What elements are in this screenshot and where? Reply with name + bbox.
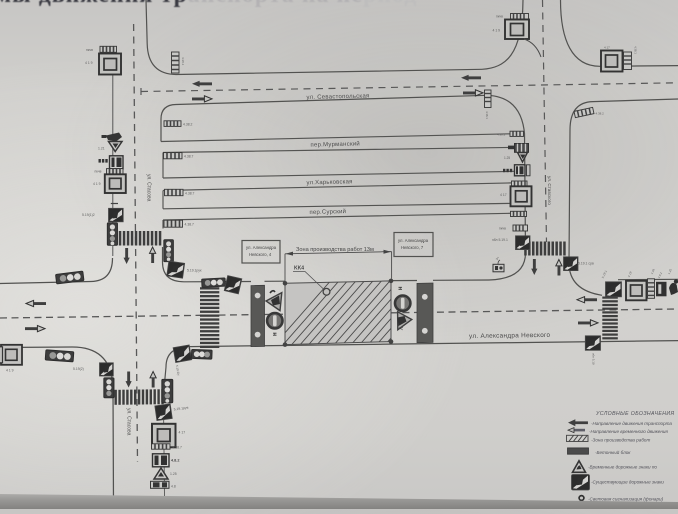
svg-text:пкчв: пкчв	[496, 15, 503, 19]
svg-text:4.8.2: 4.8.2	[171, 459, 179, 463]
svg-text:4 17: 4 17	[179, 431, 186, 435]
svg-text:ул. Севастопольская: ул. Севастопольская	[306, 93, 369, 101]
svg-text:4 17: 4 17	[500, 193, 507, 197]
svg-text:1.25: 1.25	[504, 156, 510, 160]
svg-text:5.19.1рук: 5.19.1рук	[187, 269, 202, 273]
svg-text:эбл 5.19: эбл 5.19	[592, 353, 596, 365]
svg-text:4.38.7: 4.38.7	[184, 155, 194, 159]
svg-text:-Направление временного движен: -Направление временного движения	[589, 429, 668, 434]
svg-text:ул. Стасова: ул. Стасова	[146, 174, 152, 202]
svg-text:пер.Сурский: пер.Сурский	[309, 208, 346, 216]
svg-text:-Направление движения транспор: -Направление движения транспорта	[591, 421, 672, 426]
svg-text:ул. Стасова: ул. Стасова	[126, 408, 132, 436]
svg-text:4.38.1: 4.38.1	[485, 111, 489, 119]
svg-text:-Зона производства работ: -Зона производства работ	[591, 438, 650, 443]
svg-text:ул. Ставского: ул. Ставского	[547, 176, 552, 205]
svg-text:эбл 5.19.1: эбл 5.19.1	[492, 238, 508, 242]
svg-text:УСЛОВНЫЕ ОБОЗНАЧЕНИЯ: УСЛОВНЫЕ ОБОЗНАЧЕНИЯ	[596, 411, 674, 417]
svg-text:-Световая сигнализация (фонари: -Световая сигнализация (фонари)	[588, 497, 664, 502]
svg-text:1.25: 1.25	[667, 268, 673, 275]
svg-text:KK4: KK4	[294, 266, 304, 272]
svg-text:-Временные дорожные знаки по: -Временные дорожные знаки по	[588, 465, 657, 470]
svg-text:4.8: 4.8	[171, 485, 176, 489]
svg-text:пкчв: пкчв	[86, 48, 93, 52]
svg-text:4.38.1: 4.38.1	[634, 46, 638, 54]
svg-text:4.38.2: 4.38.2	[497, 133, 506, 137]
svg-text:-Существующие дорожные знаки: -Существующие дорожные знаки	[591, 480, 664, 485]
svg-text:ул. Александра: ул. Александра	[398, 238, 429, 243]
svg-text:4.38.2: 4.38.2	[596, 112, 605, 116]
svg-text:4 19: 4 19	[627, 271, 633, 278]
svg-text:4.38.2: 4.38.2	[183, 123, 193, 127]
svg-text:пер.Мурманский: пер.Мурманский	[310, 140, 360, 148]
svg-text:5.19.2(к: 5.19.2(к	[175, 365, 181, 377]
svg-text:н: н	[397, 287, 403, 291]
svg-text:Невского, 7: Невского, 7	[401, 245, 424, 250]
svg-text:пкчв: пкчв	[499, 227, 506, 231]
svg-text:5.19.1: 5.19.1	[601, 269, 608, 279]
svg-text:4 1 9: 4 1 9	[493, 29, 501, 33]
svg-text:4.8.2: 4.8.2	[657, 271, 663, 279]
svg-text:н: н	[273, 332, 279, 336]
svg-text:4 1 9: 4 1 9	[6, 369, 14, 373]
svg-text:Невского, 4: Невского, 4	[249, 252, 272, 257]
svg-text:4.38: 4.38	[650, 268, 656, 275]
svg-text:5.19.1 срв: 5.19.1 срв	[578, 262, 594, 266]
svg-text:4.38.1: 4.38.1	[181, 57, 185, 66]
svg-text:ул. Александра: ул. Александра	[246, 245, 277, 250]
svg-text:5.19(2): 5.19(2)	[73, 367, 84, 371]
svg-text:5.19.1рув: 5.19.1рув	[173, 405, 188, 411]
svg-text:4.38.7: 4.38.7	[185, 223, 195, 227]
svg-text:5.19(1)2: 5.19(1)2	[82, 213, 95, 217]
svg-text:пкчв: пкчв	[95, 170, 102, 174]
svg-text:ул. Александра Невского: ул. Александра Невского	[469, 332, 551, 340]
svg-text:4 1 9: 4 1 9	[85, 61, 93, 65]
svg-text:1.21: 1.21	[98, 147, 105, 151]
svg-text:-Бетонный блок: -Бетонный блок	[595, 449, 631, 455]
svg-text:4.38.7: 4.38.7	[185, 192, 195, 196]
svg-text:ул.Харьковская: ул.Харьковская	[306, 179, 352, 186]
svg-text:Зона производства работ 13м: Зона производства работ 13м	[296, 247, 374, 253]
svg-text:1.25: 1.25	[170, 472, 177, 476]
svg-text:4 17: 4 17	[604, 46, 610, 50]
svg-text:4.38.7: 4.38.7	[173, 446, 183, 450]
svg-text:4 1 9: 4 1 9	[93, 182, 101, 186]
